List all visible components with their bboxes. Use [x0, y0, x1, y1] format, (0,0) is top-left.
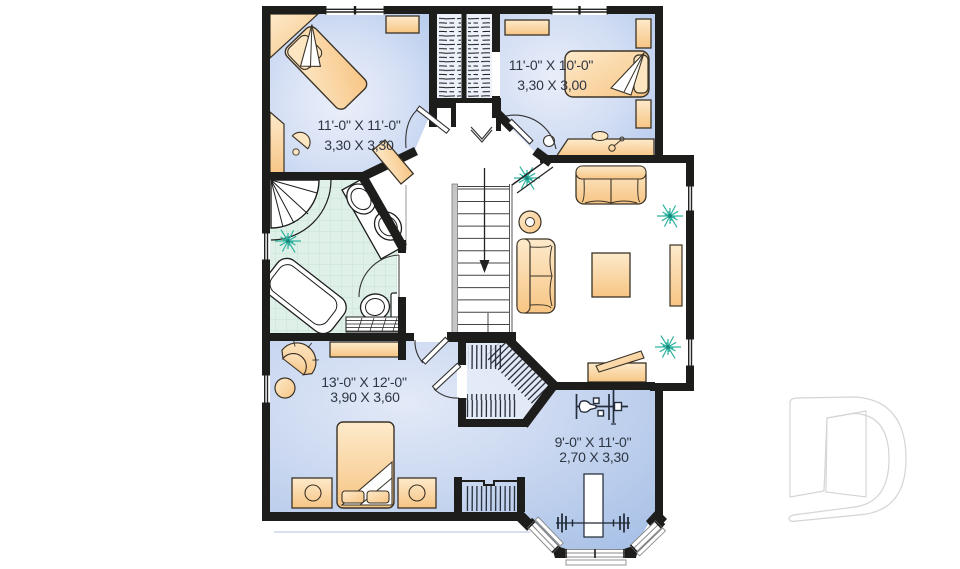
svg-text:11'-0" X 11'-0": 11'-0" X 11'-0"	[317, 117, 401, 133]
svg-text:3,90 X 3,60: 3,90 X 3,60	[330, 389, 400, 405]
svg-text:13'-0" X 12'-0": 13'-0" X 12'-0"	[321, 374, 407, 390]
svg-text:2,70 X 3,30: 2,70 X 3,30	[559, 449, 629, 465]
svg-text:11'-0" X 10'-0": 11'-0" X 10'-0"	[509, 57, 594, 73]
svg-text:3,30 X 3,30: 3,30 X 3,30	[324, 137, 394, 153]
svg-text:3,30 X 3,00: 3,30 X 3,00	[517, 77, 587, 93]
svg-text:9'-0" X 11'-0": 9'-0" X 11'-0"	[555, 434, 632, 450]
